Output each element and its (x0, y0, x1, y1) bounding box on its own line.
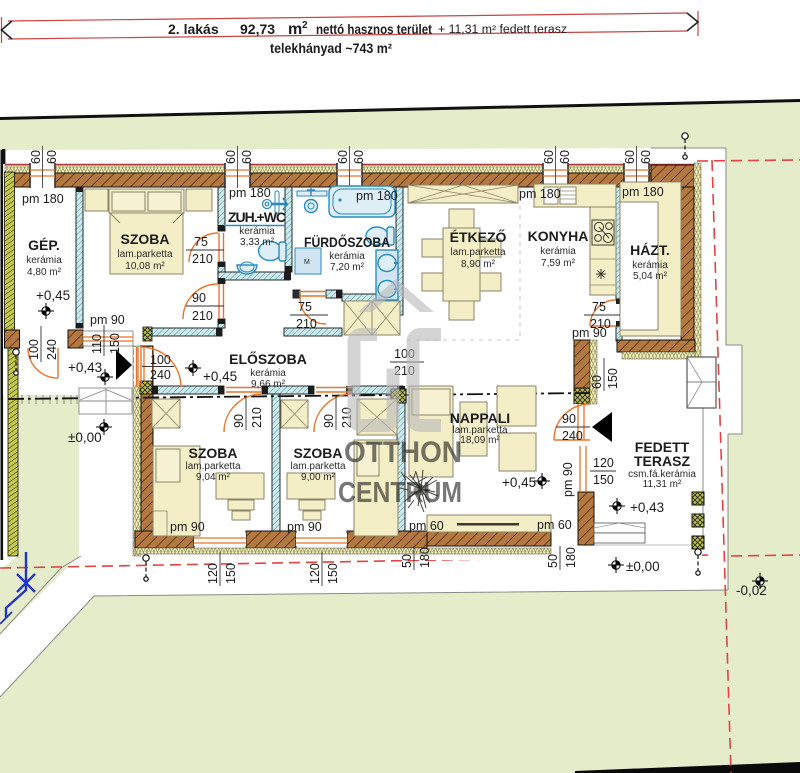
svg-text:50: 50 (400, 554, 414, 568)
svg-text:lam.parketta: lam.parketta (185, 461, 240, 472)
svg-text:18,09 m²: 18,09 m² (460, 435, 500, 446)
svg-text:75: 75 (298, 300, 312, 314)
svg-text:pm 60: pm 60 (537, 518, 572, 532)
svg-text:pm 180: pm 180 (22, 192, 64, 206)
svg-text:FÜRDŐSZOBA: FÜRDŐSZOBA (304, 233, 390, 250)
svg-text:75: 75 (592, 300, 606, 314)
svg-text:210: 210 (296, 317, 317, 331)
svg-text:telekhányad ~743 m²: telekhányad ~743 m² (270, 41, 392, 56)
svg-text:pm 180: pm 180 (622, 185, 664, 199)
svg-text:ÉTKEZŐ: ÉTKEZŐ (450, 228, 507, 245)
svg-text:pm 90: pm 90 (561, 462, 575, 497)
svg-text:180: 180 (418, 547, 432, 568)
svg-text:pm 180: pm 180 (356, 189, 398, 203)
svg-text:60: 60 (352, 150, 366, 164)
svg-text:60: 60 (623, 150, 637, 164)
svg-text:9,04 m²: 9,04 m² (196, 472, 231, 483)
svg-text:60: 60 (336, 150, 350, 164)
svg-text:210: 210 (192, 309, 213, 323)
svg-text:120: 120 (206, 563, 220, 584)
svg-text:7,20 m²: 7,20 m² (330, 262, 365, 273)
svg-text:kerámia: kerámia (632, 260, 668, 271)
svg-text:+0,43: +0,43 (68, 360, 102, 375)
svg-text:60: 60 (240, 150, 254, 164)
svg-text:150: 150 (593, 473, 614, 487)
svg-text:2: 2 (302, 20, 308, 31)
svg-text:+0,45: +0,45 (203, 369, 237, 384)
svg-text:CENTRUM: CENTRUM (338, 477, 462, 509)
svg-text:±0,00: ±0,00 (626, 559, 660, 574)
svg-text:+0,43: +0,43 (630, 500, 664, 515)
svg-text:210: 210 (192, 252, 213, 266)
svg-text:+0,45: +0,45 (36, 288, 70, 303)
svg-text:ZUH.+WC: ZUH.+WC (228, 209, 286, 225)
svg-text:pm 180: pm 180 (519, 187, 561, 201)
svg-text:KONYHA: KONYHA (528, 228, 589, 244)
svg-text:90: 90 (322, 414, 336, 428)
svg-text:210: 210 (250, 407, 264, 428)
svg-text:nettó hasznos terület: nettó hasznos terület (316, 21, 432, 37)
svg-text:kerámia: kerámia (329, 251, 365, 262)
svg-text:120: 120 (593, 456, 614, 470)
svg-text:pm 60: pm 60 (409, 519, 444, 533)
svg-text:3,33 m²: 3,33 m² (240, 237, 275, 248)
svg-text:150: 150 (326, 563, 340, 584)
svg-text:kerámia: kerámia (239, 226, 275, 237)
svg-text:SZOBA: SZOBA (294, 445, 343, 461)
svg-text:92,73: 92,73 (240, 21, 275, 37)
svg-text:±0,00: ±0,00 (68, 430, 102, 445)
svg-text:240: 240 (45, 339, 59, 360)
svg-text:50: 50 (546, 554, 560, 568)
svg-text:10,08 m²: 10,08 m² (125, 261, 165, 272)
svg-text:m: m (288, 21, 302, 38)
svg-text:100: 100 (27, 339, 41, 360)
svg-text:M: M (304, 259, 310, 266)
svg-text:9,00 m²: 9,00 m² (301, 472, 336, 483)
svg-text:90: 90 (562, 412, 576, 426)
svg-text:8,90 m²: 8,90 m² (461, 259, 496, 270)
svg-text:lam.parketta: lam.parketta (450, 247, 505, 258)
svg-text:9,66 m²: 9,66 m² (251, 379, 286, 390)
svg-text:150: 150 (108, 333, 122, 354)
svg-text:120: 120 (308, 563, 322, 584)
svg-text:SZOBA: SZOBA (189, 445, 238, 461)
svg-text:pm 180: pm 180 (229, 186, 271, 200)
svg-text:240: 240 (562, 429, 583, 443)
svg-text:GÉP.: GÉP. (28, 237, 60, 253)
svg-text:240: 240 (150, 368, 171, 382)
svg-text:kerámia: kerámia (250, 368, 286, 379)
svg-text:pm 90: pm 90 (572, 326, 607, 340)
svg-text:TERASZ: TERASZ (634, 453, 690, 469)
svg-text:11,31 m²: 11,31 m² (643, 479, 682, 490)
svg-text:60: 60 (29, 150, 43, 164)
svg-text:pm 90: pm 90 (287, 520, 322, 534)
svg-text:HÁZT.: HÁZT. (630, 242, 670, 258)
svg-text:NAPPALI: NAPPALI (450, 410, 510, 426)
svg-text:7,59 m²: 7,59 m² (541, 258, 576, 269)
svg-text:ELŐSZOBA: ELŐSZOBA (229, 350, 307, 367)
svg-text:180: 180 (564, 547, 578, 568)
svg-text:60: 60 (558, 150, 572, 164)
svg-text:kerámia: kerámia (540, 246, 576, 257)
svg-text:SZOBA: SZOBA (121, 231, 170, 247)
svg-text:lam.parketta: lam.parketta (117, 249, 172, 260)
svg-text:+ 11,31 m² fedett terasz: + 11,31 m² fedett terasz (438, 24, 567, 36)
svg-text:60: 60 (639, 150, 653, 164)
svg-text:60: 60 (45, 150, 59, 164)
svg-text:-0,02: -0,02 (736, 583, 767, 598)
svg-text:60: 60 (590, 375, 604, 389)
svg-text:5,04 m²: 5,04 m² (633, 271, 668, 282)
svg-text:pm 90: pm 90 (90, 313, 125, 327)
svg-text:4,80 m²: 4,80 m² (27, 267, 62, 278)
svg-text:2. lakás: 2. lakás (168, 21, 219, 37)
svg-text:+0,45: +0,45 (502, 475, 536, 490)
svg-text:90: 90 (232, 414, 246, 428)
svg-text:OTTHON: OTTHON (344, 436, 462, 469)
svg-text:60: 60 (542, 150, 556, 164)
svg-text:pm 90: pm 90 (170, 520, 205, 534)
svg-text:kerámia: kerámia (26, 255, 62, 266)
svg-text:150: 150 (224, 563, 238, 584)
svg-text:90: 90 (192, 291, 206, 305)
svg-text:lam.parketta: lam.parketta (290, 461, 345, 472)
svg-text:110: 110 (90, 334, 104, 354)
svg-text:60: 60 (224, 150, 238, 164)
svg-text:150: 150 (606, 368, 620, 389)
svg-text:100: 100 (150, 353, 171, 367)
svg-text:75: 75 (194, 235, 208, 249)
